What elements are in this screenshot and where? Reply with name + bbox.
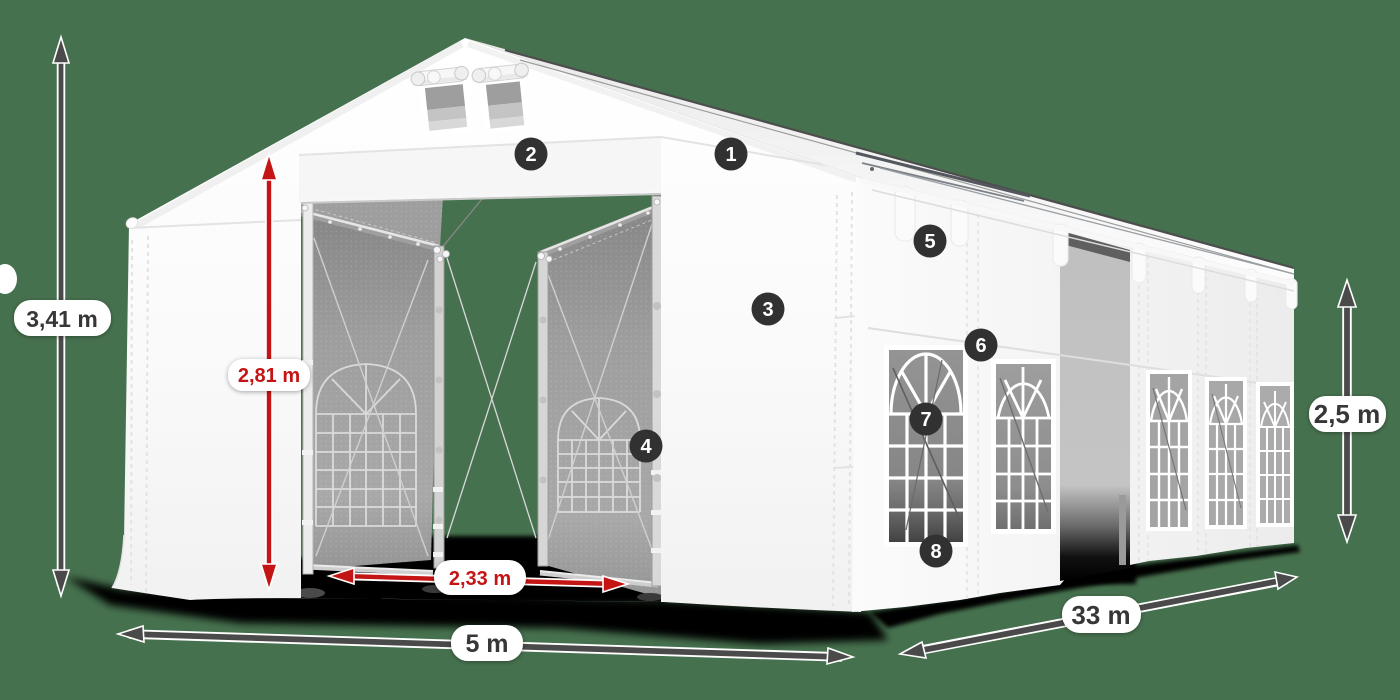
svg-text:2,5 m: 2,5 m — [1314, 399, 1381, 429]
svg-text:7: 7 — [920, 409, 931, 431]
svg-text:8: 8 — [930, 541, 941, 563]
svg-text:3,41 m: 3,41 m — [26, 306, 98, 332]
svg-text:5 m: 5 m — [465, 630, 508, 658]
svg-text:6: 6 — [975, 335, 986, 357]
svg-text:3: 3 — [762, 299, 773, 321]
svg-text:1: 1 — [725, 144, 736, 166]
svg-text:2,81 m: 2,81 m — [238, 365, 300, 387]
svg-text:5: 5 — [924, 231, 935, 253]
svg-text:2: 2 — [525, 144, 536, 166]
svg-text:33 m: 33 m — [1071, 600, 1130, 630]
svg-text:2,33 m: 2,33 m — [449, 568, 511, 590]
svg-text:4: 4 — [640, 436, 652, 458]
